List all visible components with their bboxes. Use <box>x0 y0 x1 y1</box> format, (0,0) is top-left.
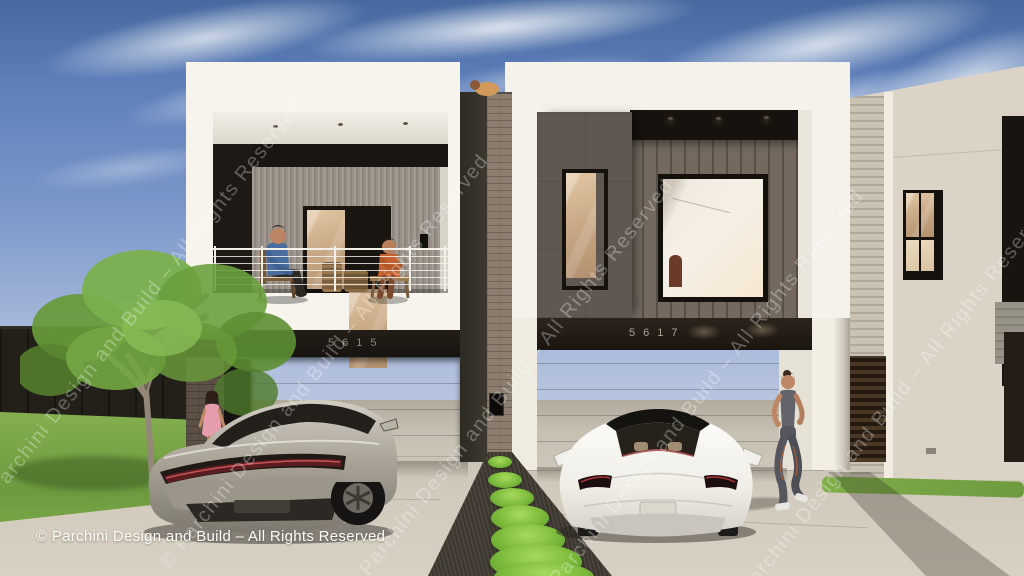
railing-post <box>334 246 336 291</box>
jogger-figure <box>760 366 818 514</box>
recessed-light <box>273 125 278 128</box>
railing-post <box>409 246 411 291</box>
recessed-light <box>716 117 721 120</box>
copyright-line: © Parchini Design and Build – All Rights… <box>36 528 385 545</box>
left-house-number: 5615 <box>328 337 384 349</box>
silver-sports-car <box>134 386 406 546</box>
white-sedan-car <box>548 384 768 544</box>
railing-post <box>444 246 446 291</box>
tall-window-glass <box>566 173 596 278</box>
right-house-number: 5617 <box>629 327 685 339</box>
neighbor-window <box>903 190 943 280</box>
interior-person-head <box>669 255 682 287</box>
right-house-soffit-recess <box>630 110 812 140</box>
recessed-light <box>338 123 343 126</box>
neighbor-garage-door <box>1004 332 1024 462</box>
grass-tuft <box>488 456 512 468</box>
neighbor-window-mullion <box>919 193 921 271</box>
tall-window <box>562 169 608 290</box>
middle-tower-shadow-face <box>460 92 487 462</box>
balcony-soffit <box>213 112 448 144</box>
recessed-light <box>403 122 408 125</box>
right-house-white-edge <box>798 110 812 318</box>
recessed-light <box>668 117 673 120</box>
right-house-address-band: 5617 <box>537 318 812 350</box>
right-house <box>505 62 850 330</box>
neighbor-vent <box>926 448 936 454</box>
grass-tuft <box>488 472 522 488</box>
rooftop-figure <box>466 74 502 96</box>
picture-window <box>658 174 768 302</box>
tower-mailbox <box>489 393 504 416</box>
soffit-glow <box>745 322 779 338</box>
architectural-rendering: 5617 <box>0 0 1024 576</box>
soffit-glow <box>687 324 721 340</box>
recessed-light <box>764 116 769 119</box>
